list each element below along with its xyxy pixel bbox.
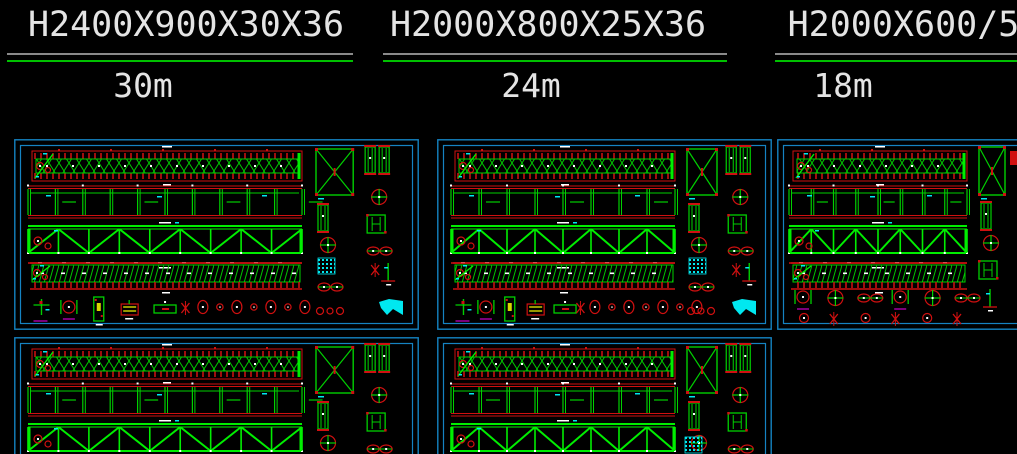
header-underline-gray	[7, 53, 353, 55]
beam-spec-header-30m: H2400X900X30X36 30m	[0, 0, 1017, 110]
drawing-panel-18m-svg	[777, 139, 1017, 330]
beam-spec-header-18m: H2000X600/50 18m	[0, 0, 1017, 110]
beam-spec-title: H2000X600/50	[788, 6, 1017, 45]
header-underline-gray	[383, 53, 727, 55]
drawing-panel-18m[interactable]	[777, 139, 1017, 330]
drawing-panel-24m-top[interactable]	[437, 139, 772, 330]
header-underline-green	[775, 60, 1017, 62]
drawing-panel-24m-bottom[interactable]	[437, 337, 772, 454]
drawing-panel-30m-bottom[interactable]	[14, 337, 419, 454]
beam-spec-header-24m: H2000X800X25X36 24m	[0, 0, 1017, 110]
span-length-label: 18m	[813, 68, 873, 104]
span-length-label: 30m	[113, 68, 173, 104]
cad-drawing-canvas: H2400X900X30X36 30m H2000X800X25X36 24m …	[0, 0, 1017, 454]
span-length-label: 24m	[501, 68, 561, 104]
drawing-panel-30m-top-svg	[14, 139, 419, 330]
beam-spec-title: H2000X800X25X36	[390, 6, 706, 45]
header-underline-green	[7, 60, 353, 62]
drawing-panel-30m-bottom-svg	[14, 337, 419, 454]
header-underline-gray	[775, 53, 1017, 55]
drawing-panel-24m-bottom-svg	[437, 337, 772, 454]
beam-spec-title: H2400X900X30X36	[28, 6, 344, 45]
header-underline-green	[383, 60, 727, 62]
drawing-panel-24m-top-svg	[437, 139, 772, 330]
drawing-panel-30m-top[interactable]	[14, 139, 419, 330]
